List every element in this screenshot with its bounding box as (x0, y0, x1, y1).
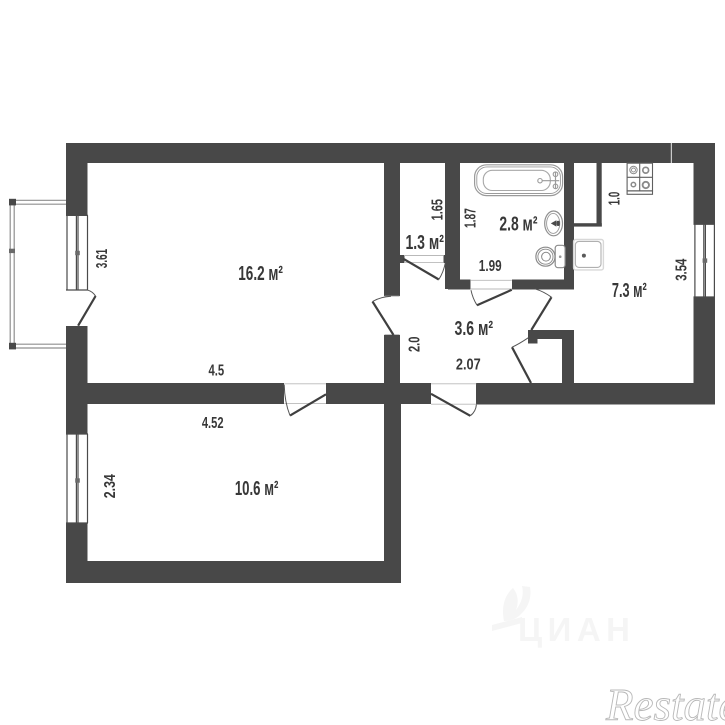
svg-text:2.0: 2.0 (407, 337, 424, 352)
svg-text:3.6 м²: 3.6 м² (455, 317, 494, 340)
svg-text:2.8 м²: 2.8 м² (499, 212, 537, 235)
svg-text:1.99: 1.99 (479, 258, 502, 275)
svg-text:3.61: 3.61 (94, 249, 111, 268)
svg-text:ЦИАН: ЦИАН (518, 611, 636, 648)
svg-text:Restate: Restate (605, 680, 725, 725)
svg-text:3.54: 3.54 (674, 259, 691, 281)
svg-text:10.6 м²: 10.6 м² (235, 477, 279, 500)
svg-text:1.65: 1.65 (430, 199, 447, 220)
svg-text:4.5: 4.5 (208, 363, 224, 380)
svg-text:1.87: 1.87 (463, 208, 480, 228)
svg-text:1.0: 1.0 (606, 192, 623, 206)
svg-text:2.34: 2.34 (102, 474, 119, 498)
svg-text:16.2 м²: 16.2 м² (238, 262, 283, 285)
svg-text:2.07: 2.07 (456, 356, 481, 373)
svg-text:4.52: 4.52 (202, 415, 224, 432)
svg-text:7.3 м²: 7.3 м² (612, 279, 647, 302)
svg-text:1.3 м²: 1.3 м² (406, 231, 445, 254)
